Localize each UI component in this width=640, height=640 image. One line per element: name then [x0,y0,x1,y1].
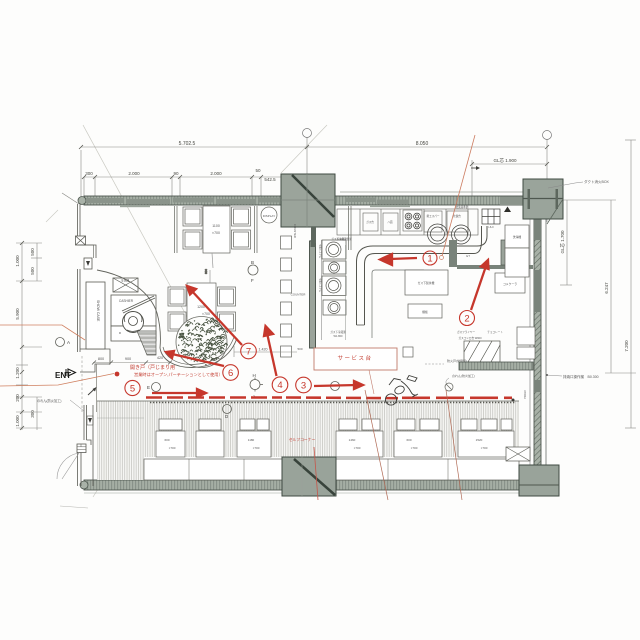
svg-text:八面: 八面 [387,220,393,224]
svg-text:W1.800: W1.800 [334,334,343,338]
svg-text:4: 4 [277,380,282,391]
svg-text:ガス台: ガス台 [366,220,374,224]
svg-text:1.000: 1.000 [15,415,20,427]
svg-text:5.702.5: 5.702.5 [179,141,196,147]
svg-text:排焼口操作謝 B0.300: 排焼口操作謝 B0.300 [563,374,599,379]
svg-text:ガス下製氷機: ガス下製氷機 [418,281,435,285]
svg-text:総菜基準器: 総菜基準器 [456,205,469,209]
svg-text:のれん(防炎加工): のれん(防炎加工) [452,373,475,378]
svg-text:1520: 1520 [476,438,483,442]
svg-text:寸胜システム: 寸胜システム [319,278,323,293]
svg-text:コメクーラ: コメクーラ [503,282,517,286]
svg-text:500: 500 [30,267,35,275]
svg-text:GT: GT [466,254,470,258]
svg-text:営業時はオープン,パーテーションとして使用）: 営業時はオープン,パーテーションとして使用） [134,371,223,378]
svg-text:8.050: 8.050 [416,141,429,147]
svg-text:5: 5 [130,384,135,395]
svg-text:F: F [251,278,254,283]
svg-text:H: H [253,373,256,378]
svg-text:3: 3 [301,381,306,392]
svg-text:洗浄機: 洗浄機 [513,235,522,239]
svg-text:600: 600 [164,438,169,442]
svg-text:1460: 1460 [349,438,356,442]
svg-text:のれん(防炎加工): のれん(防炎加工) [37,398,61,403]
svg-text:900: 900 [125,357,131,361]
svg-text:ガスフライヤー: ガスフライヤー [457,330,475,334]
svg-text:サービス台: サービス台 [337,354,372,362]
svg-text:600: 600 [406,438,411,442]
svg-text:200: 200 [15,394,20,402]
svg-text:500: 500 [297,347,302,351]
svg-text:3700H: 3700H [523,390,527,399]
svg-text:ガス下冷蔵庫: ガス下冷蔵庫 [330,330,346,334]
svg-text:B: B [251,260,254,265]
svg-text:300: 300 [30,410,35,418]
svg-text:×700: ×700 [354,446,361,450]
svg-text:棚板: 棚板 [422,310,428,314]
svg-text:COUNTER: COUNTER [293,224,297,238]
svg-text:揚エスパー: 揚エスパー [427,214,440,218]
svg-text:50: 50 [255,168,261,173]
svg-text:1: 1 [427,254,432,265]
svg-text:×700: ×700 [212,231,220,235]
svg-text:6.247: 6.247 [604,282,609,294]
svg-text:×700: ×700 [411,446,418,450]
svg-text:500: 500 [30,248,35,256]
svg-text:7.200: 7.200 [624,340,629,352]
svg-text:2: 2 [464,314,469,325]
svg-text:E: E [147,385,150,390]
svg-text:×700: ×700 [202,312,210,316]
svg-text:300: 300 [85,171,93,176]
svg-text:7: 7 [246,347,251,358]
svg-text:セルフコーナー: セルフコーナー [289,437,316,442]
svg-text:1.420: 1.420 [259,348,268,352]
svg-text:1.200: 1.200 [15,367,20,379]
svg-text:開き戸（戸じまり用: 開き戸（戸じまり用 [130,364,175,371]
svg-text:1.000: 1.000 [15,255,20,267]
svg-text:GL芯 1.900: GL芯 1.900 [493,157,517,163]
svg-text:5.900: 5.900 [15,308,20,320]
svg-text:800: 800 [204,269,208,274]
svg-text:寸胜システム: 寸胜システム [319,244,323,259]
svg-text:COUNTER: COUNTER [291,293,307,297]
svg-text:L6-0: L6-0 [488,225,494,229]
svg-text:90: 90 [173,171,179,176]
svg-text:GL芯 1.700: GL芯 1.700 [559,230,565,254]
svg-text:ガス中元霊屋: ガス中元霊屋 [336,237,352,241]
svg-text:A: A [67,340,70,345]
svg-text:6: 6 [228,368,233,379]
svg-text:542.5: 542.5 [264,177,276,182]
svg-text:×700: ×700 [253,446,260,450]
svg-text:SHOW CASE: SHOW CASE [96,300,100,322]
svg-text:DISPLAY: DISPLAY [263,214,275,218]
svg-text:チョコレート: チョコレート [487,330,503,334]
svg-text:1180: 1180 [248,438,255,442]
svg-text:ダクト消火BOX: ダクト消火BOX [584,179,610,184]
svg-text:炊飯台: 炊飯台 [453,214,461,218]
svg-text:×700: ×700 [169,446,176,450]
svg-text:ガスコンロ台 W600: ガスコンロ台 W600 [458,336,482,340]
svg-text:CASHIER: CASHIER [119,299,134,303]
svg-text:×700: ×700 [481,446,488,450]
svg-text:800: 800 [98,357,104,361]
svg-text:420: 420 [157,356,163,360]
svg-text:1100: 1100 [212,224,220,228]
svg-text:2.000: 2.000 [210,171,222,176]
svg-text:1200: 1200 [197,305,205,309]
svg-text:2.000: 2.000 [128,171,140,176]
